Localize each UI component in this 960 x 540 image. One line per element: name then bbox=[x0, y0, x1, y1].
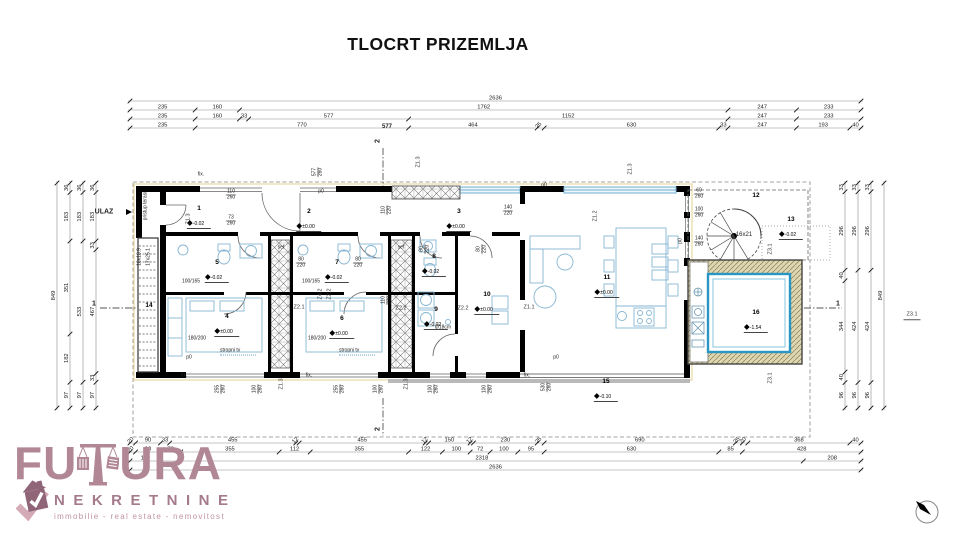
dim-label: 296 bbox=[852, 226, 858, 236]
dim-label: 344 bbox=[839, 321, 845, 331]
dim-label: 1762 bbox=[477, 105, 490, 111]
dim-label: 296 bbox=[865, 226, 871, 236]
dim-label: 33 bbox=[90, 242, 96, 248]
dim-label: 33 bbox=[865, 184, 871, 190]
dim-label: 33 bbox=[241, 114, 247, 120]
dim-label: 40 bbox=[839, 272, 845, 278]
dim-label: 97 bbox=[77, 392, 83, 398]
dim-label: 100 bbox=[451, 447, 461, 453]
dim-label: 122 bbox=[421, 447, 431, 453]
dim-label: 40 bbox=[839, 374, 845, 380]
dim-label: 455 bbox=[357, 438, 367, 444]
dim-label: 97 bbox=[64, 392, 70, 398]
logo-tagline: immobilie - real estate - nemovitost bbox=[54, 512, 237, 521]
dim-label: 235 bbox=[158, 105, 168, 111]
logo-word-ura: URA bbox=[119, 442, 222, 484]
dim-label: 112 bbox=[290, 447, 299, 453]
dim-label: 351 bbox=[64, 283, 70, 293]
dim-label: 100 bbox=[499, 447, 509, 453]
dim-label: 428 bbox=[797, 447, 807, 453]
dim-label: 183 bbox=[64, 212, 70, 222]
dim-label: 849 bbox=[51, 291, 57, 301]
dim-label: 247 bbox=[757, 123, 767, 129]
logo-subtitle: NEKRETNINE bbox=[54, 492, 237, 509]
dim-label: 40 bbox=[852, 123, 858, 129]
dim-label: 72 bbox=[477, 447, 483, 453]
dim-label: 33 bbox=[852, 184, 858, 190]
dim-label: 193 bbox=[818, 123, 828, 129]
logo-word-fu: FU bbox=[14, 442, 77, 484]
dim-label: 96 bbox=[865, 392, 871, 398]
dim-label: 183 bbox=[90, 212, 96, 222]
dim-label: 355 bbox=[355, 447, 365, 453]
dim-label: 183 bbox=[77, 212, 83, 222]
dim-label: 36 bbox=[90, 185, 96, 191]
dim-label: 424 bbox=[865, 321, 871, 331]
dim-label: 230 bbox=[501, 438, 511, 444]
dim-label: 208 bbox=[827, 456, 837, 462]
floor-plan-page: 2636235160176224723323516033577115224723… bbox=[0, 0, 960, 540]
dim-label: 182 bbox=[64, 353, 70, 363]
dim-label: 849 bbox=[878, 291, 884, 301]
dim-label: 235 bbox=[158, 114, 168, 120]
dim-label: 424 bbox=[852, 321, 858, 331]
dim-label: 150 bbox=[445, 438, 455, 444]
dim-label: 160 bbox=[212, 114, 222, 120]
dim-label: 247 bbox=[757, 105, 767, 111]
dim-label: 467 bbox=[90, 307, 96, 317]
dim-label: 690 bbox=[635, 438, 645, 444]
dim-label: 296 bbox=[839, 226, 845, 236]
dim-label: 96 bbox=[839, 392, 845, 398]
dim-label: 36 bbox=[64, 185, 70, 191]
dim-label: 233 bbox=[824, 114, 834, 120]
page-title: TLOCRT PRIZEMLJA bbox=[298, 34, 578, 55]
dim-label: 2636 bbox=[489, 465, 502, 471]
dim-label: 40 bbox=[852, 438, 858, 444]
dim-label: 95 bbox=[528, 447, 534, 453]
dim-label: 2318 bbox=[475, 456, 488, 462]
dim-label: 630 bbox=[627, 447, 637, 453]
scale-icon bbox=[77, 442, 119, 488]
dim-label: 96 bbox=[852, 392, 858, 398]
dim-label: 464 bbox=[468, 123, 478, 129]
dim-label: 2636 bbox=[489, 96, 502, 102]
dim-label: 577 bbox=[324, 114, 334, 120]
dim-label: 770 bbox=[297, 123, 307, 129]
dim-label: 533 bbox=[77, 307, 83, 317]
dim-label: 247 bbox=[757, 114, 767, 120]
dim-label: 33 bbox=[90, 375, 96, 381]
dim-label: 368 bbox=[794, 438, 804, 444]
dim-label: 233 bbox=[824, 105, 834, 111]
company-logo: FU URA bbox=[14, 442, 237, 521]
dim-label: 630 bbox=[627, 123, 637, 129]
dim-label: 97 bbox=[90, 392, 96, 398]
dim-label: 36 bbox=[77, 185, 83, 191]
dim-label: 85 bbox=[727, 447, 733, 453]
dim-label: 1152 bbox=[562, 114, 574, 120]
dim-label: 33 bbox=[839, 184, 845, 190]
dim-label: 235 bbox=[158, 123, 168, 129]
house-check-icon bbox=[16, 480, 56, 522]
dim-label: 33 bbox=[720, 123, 726, 129]
dim-label: 160 bbox=[212, 105, 222, 111]
